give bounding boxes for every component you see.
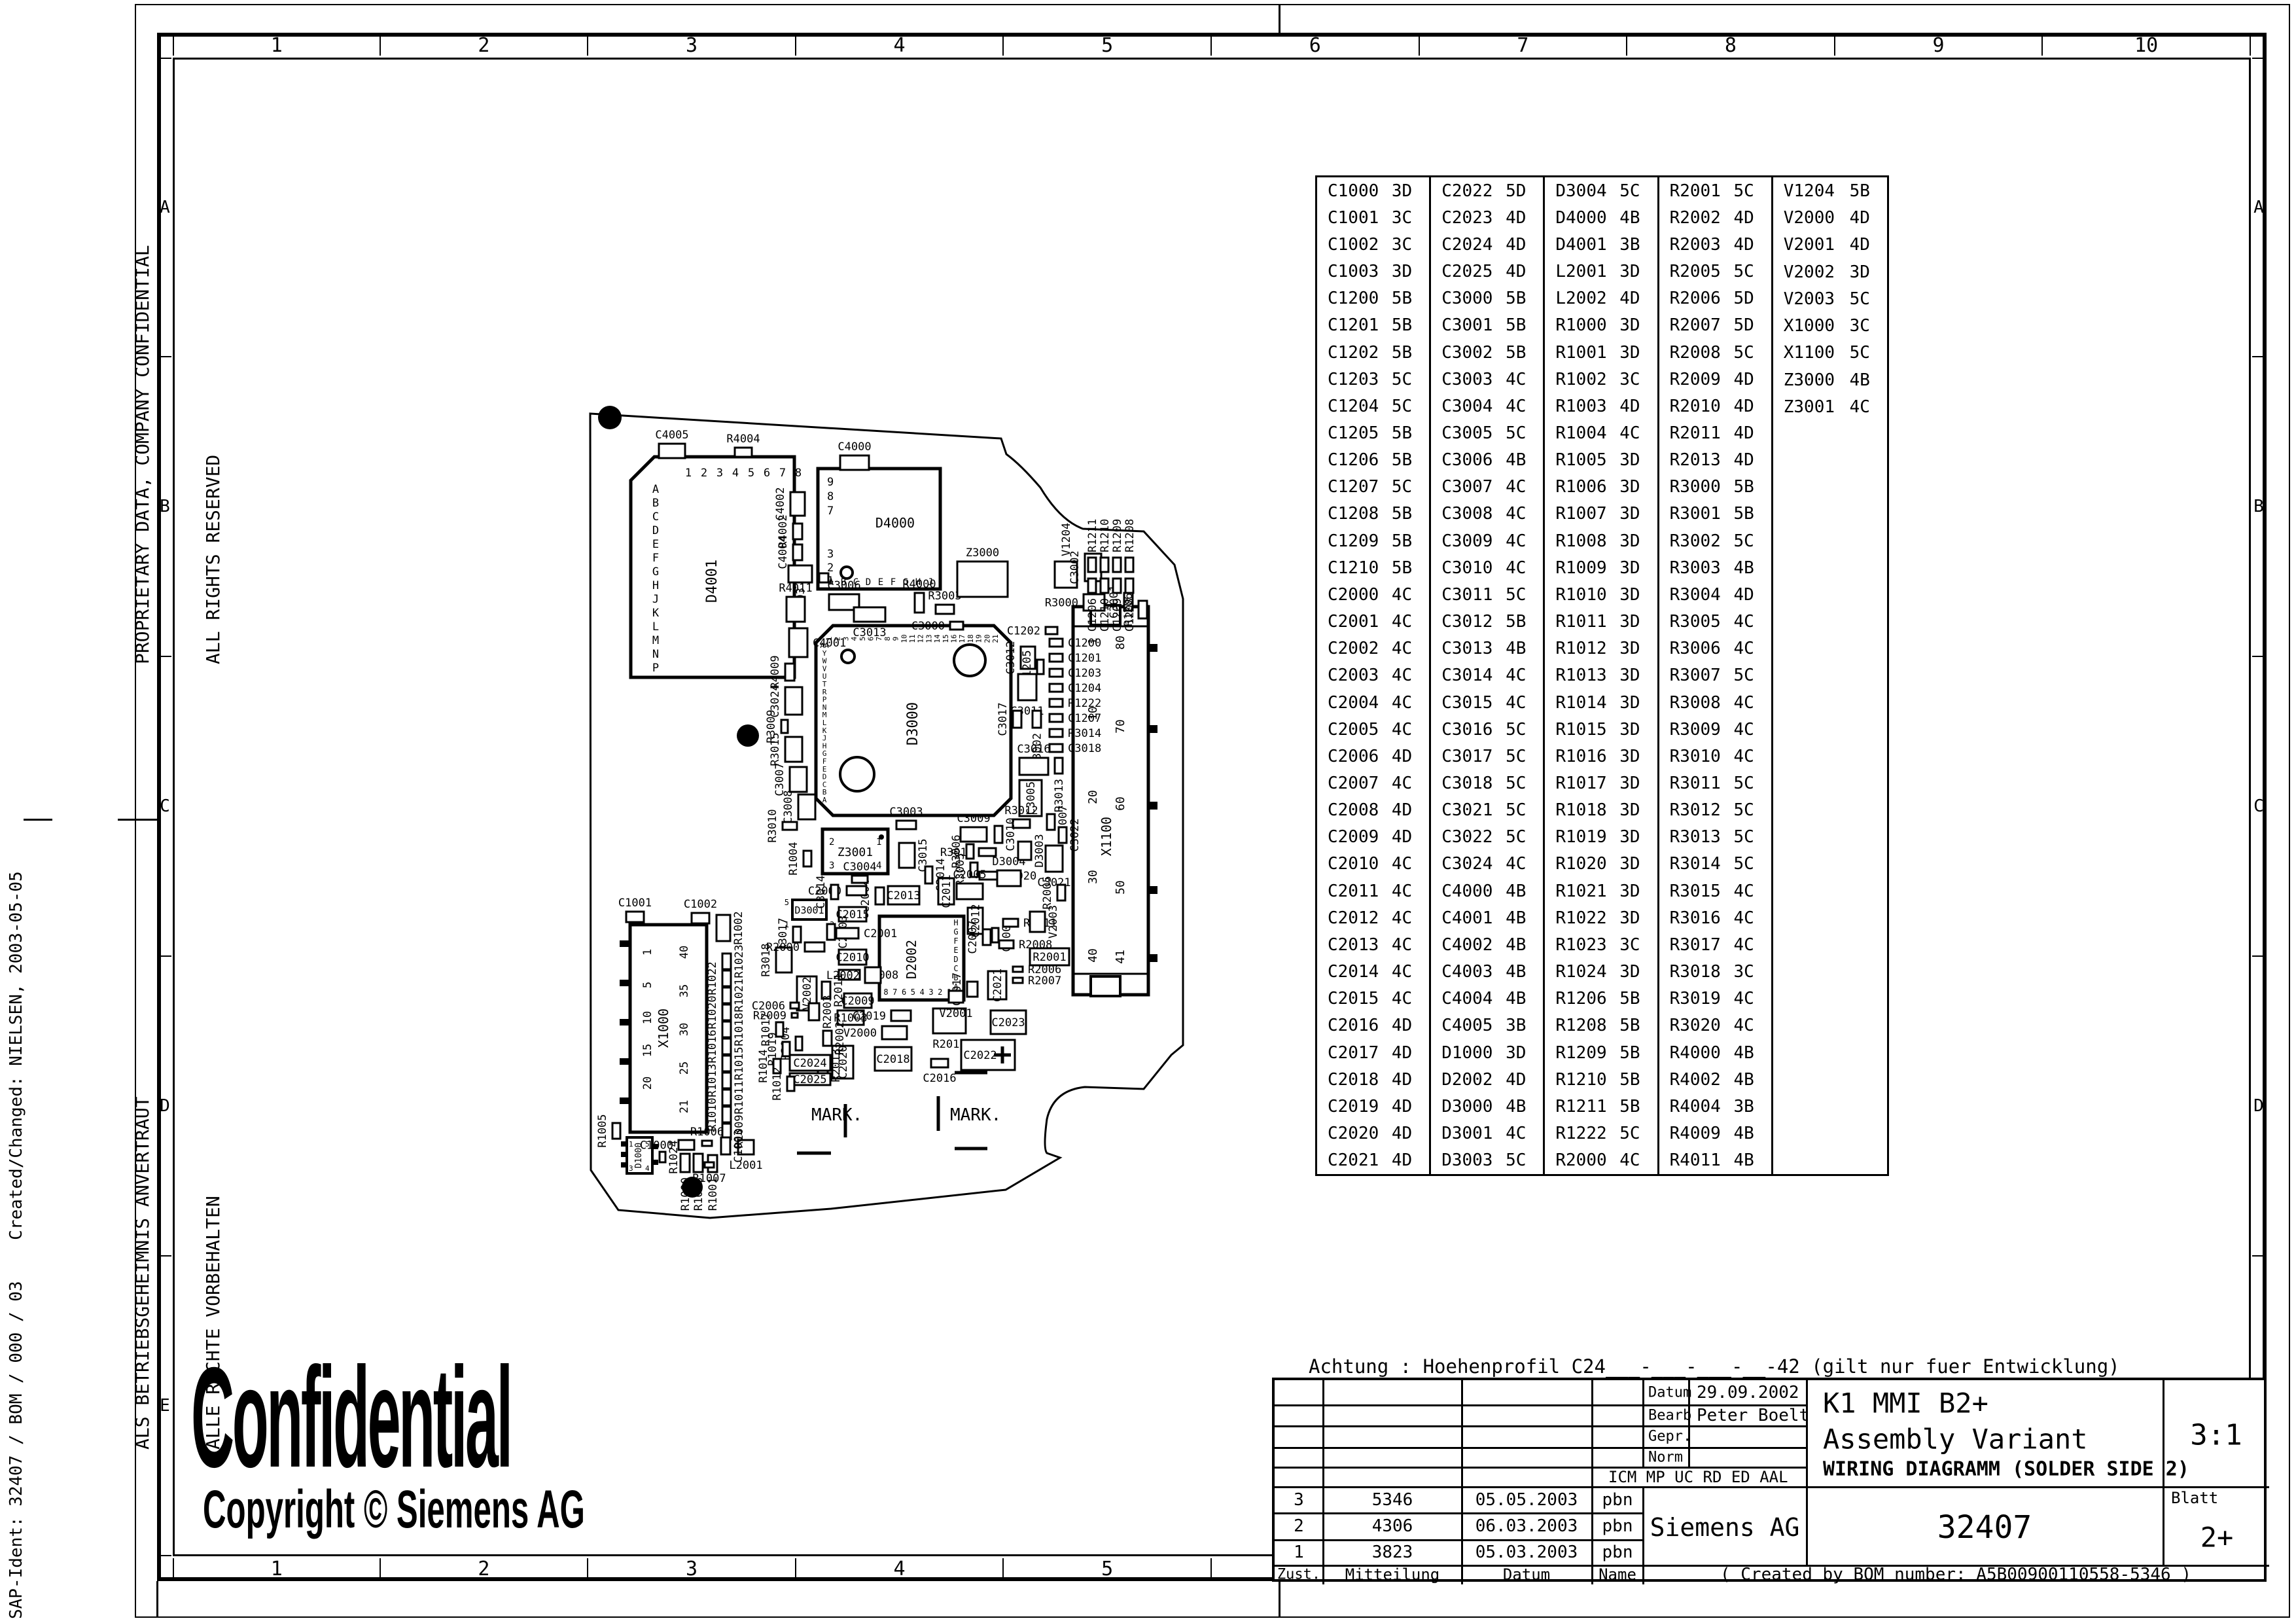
tb-rev-datum: 06.03.2003 — [1475, 1516, 1578, 1536]
component-C2003 — [827, 924, 835, 940]
component-C1210 — [1101, 579, 1108, 593]
component-R1015 — [722, 1056, 731, 1071]
component-C1209 — [1113, 579, 1121, 593]
component-V2001 — [949, 991, 963, 1003]
ic-pin-number: 6 — [902, 988, 906, 997]
component-label: V2000 — [843, 1027, 877, 1040]
tb-title-line1: K1 MMI B2+ — [1823, 1387, 1988, 1419]
tb-rev-mitteilung: 3823 — [1372, 1543, 1413, 1562]
component-C4005 — [659, 444, 685, 458]
tb-rev-mitteilung: 4306 — [1372, 1516, 1413, 1536]
component-R2007 — [1013, 978, 1023, 983]
ic-pin-number: 2 — [938, 988, 942, 997]
component-R1222 — [1050, 699, 1063, 707]
ic-pin-letter: A — [652, 483, 659, 496]
component-label: C4004 — [777, 535, 790, 569]
component-R3002 — [1033, 711, 1041, 728]
component-R2005 — [1057, 885, 1065, 901]
component-label: C2001 — [864, 927, 897, 940]
component-label: R1017 — [760, 1012, 773, 1046]
component-R1005 — [612, 1123, 620, 1139]
component-label: C3017 — [997, 702, 1010, 736]
component-R1016 — [722, 1039, 731, 1054]
connector-pin-number: 70 — [1114, 719, 1127, 734]
component-label: C2019 — [853, 1010, 886, 1023]
component-label: R1013 — [706, 1063, 719, 1097]
component-R4002 — [793, 524, 802, 539]
component-R2009 — [792, 1013, 798, 1018]
component-C3010 — [995, 826, 1002, 843]
ic-pin-number: 13 — [925, 634, 933, 643]
component-C2007 — [983, 929, 991, 945]
tb-vline-2 — [1591, 1380, 1593, 1584]
component-label: C2010 — [836, 952, 869, 965]
ic-pin-number: 4 — [920, 988, 925, 997]
component-R1208 — [1125, 558, 1133, 572]
ic-pin-number: 4 — [876, 861, 881, 871]
component-C1207 — [1050, 714, 1063, 722]
component-label: R1023 — [733, 944, 746, 978]
component-R1020 — [722, 1005, 731, 1020]
component-R2006 — [1013, 967, 1023, 972]
ic-label-d3000: D3000 — [905, 702, 921, 745]
ic-pin-letter: C — [652, 510, 659, 524]
tb-rev-datum: 05.05.2003 — [1475, 1490, 1578, 1510]
ic-pin-letter: H — [652, 579, 659, 592]
component-label: C2013 — [887, 889, 920, 902]
ic-pin-letter: D — [953, 955, 958, 964]
tb-vline-4 — [1642, 1487, 1644, 1584]
tb-footer-Mitteilung: Mitteilung — [1345, 1565, 1440, 1584]
connector-tab — [620, 1058, 630, 1065]
ic-pin-number: 10 — [900, 634, 908, 643]
component-R3010 — [783, 822, 797, 830]
connector-tab — [620, 980, 630, 986]
tb-footer-Name: Name — [1598, 1565, 1636, 1584]
component-C2019 — [891, 1010, 911, 1021]
component-C2017 — [967, 982, 978, 997]
ic-pin-letter: N — [652, 648, 659, 661]
component-label: C3008 — [782, 790, 795, 823]
connector-tab — [1148, 644, 1157, 652]
component-label: R3000 — [1045, 597, 1078, 610]
component-C4000 — [840, 455, 869, 470]
component-R1018 — [722, 1022, 731, 1037]
component-C2005 — [957, 883, 983, 899]
ic-pin-number: 16 — [950, 634, 959, 643]
ic-pin1-dot — [879, 834, 884, 840]
component-label: C1201 — [1068, 652, 1101, 665]
component-label: C1001 — [618, 897, 652, 910]
hole — [841, 567, 853, 579]
component-label: C1202 — [1007, 625, 1040, 638]
component-label: C1003 — [732, 1129, 745, 1162]
ic-pin-letter: J — [652, 593, 659, 606]
component-label: C1206 — [1086, 598, 1099, 632]
component-label: C2016 — [923, 1072, 956, 1085]
mark-label: MARK. — [950, 1105, 1001, 1125]
ic-pin-number: 4 — [732, 467, 739, 480]
component-label: R1020 — [706, 995, 719, 1029]
ic-label-d2002: D2002 — [904, 940, 919, 979]
component-label: R2005 — [1041, 876, 1054, 909]
component-C1202 — [1046, 627, 1057, 634]
tb-info-label-Norm: Norm — [1648, 1450, 1683, 1466]
ic-pin-letter: M — [652, 634, 659, 647]
tb-rev-name: pbn — [1602, 1490, 1633, 1510]
tb-vline-1 — [1461, 1380, 1463, 1584]
component-R1013 — [722, 1073, 731, 1088]
component-label: C3016 — [1017, 743, 1050, 756]
component-label: R1016 — [706, 1029, 719, 1063]
ic-pin-stub — [621, 1152, 627, 1157]
component-C1201 — [1050, 654, 1063, 662]
component-R3007 — [1047, 814, 1055, 830]
component-R1002 — [716, 915, 730, 941]
component-label: R1004 — [787, 842, 800, 875]
component-R1000 — [680, 1154, 690, 1172]
component-label: C2023 — [991, 1016, 1025, 1029]
connector-pin-number: 80 — [1114, 635, 1127, 650]
component-label: R2013 — [830, 1048, 843, 1082]
component-R1012 — [787, 1077, 794, 1091]
component-label: C4000 — [838, 440, 871, 454]
connector-label-x1000: X1000 — [656, 1008, 671, 1048]
tb-vline-3 — [1642, 1380, 1644, 1467]
component-R1211 — [1088, 558, 1096, 572]
component-R3013 — [1055, 758, 1063, 774]
component-C3014 — [831, 885, 838, 899]
component-label: R1000 — [679, 1177, 692, 1211]
component-label: C3012 — [1004, 641, 1017, 674]
component-C3011 — [1018, 674, 1036, 700]
component-R1004 — [804, 851, 811, 866]
component-label: C3000 — [911, 620, 945, 633]
component-label: R2000 — [766, 941, 800, 954]
ic-pin-letter: G — [953, 927, 958, 936]
component-label: R3015 — [769, 732, 782, 766]
ic-pin-stub — [621, 1141, 627, 1147]
component-label: C3014 — [815, 875, 828, 908]
ic-pin-number: 19 — [975, 634, 983, 643]
component-label: C1208 — [1123, 598, 1137, 632]
component-label: C4001 — [813, 637, 846, 650]
component-label: R4009 — [769, 655, 782, 688]
ic-pin-number: 6 — [764, 467, 770, 480]
component-R2000 — [805, 942, 824, 952]
ic-pin-number: 17 — [958, 634, 966, 643]
component-label: R4011 — [779, 582, 812, 595]
component-C4003 — [788, 565, 812, 582]
component-C3000 — [950, 622, 963, 630]
component-label: C3013 — [853, 626, 886, 639]
tb-rev-zust: 3 — [1294, 1490, 1304, 1510]
component-C1001 — [626, 912, 644, 922]
component-R1006 — [702, 1141, 712, 1146]
component-C3004 — [852, 876, 868, 883]
component-label: C2011 — [940, 874, 953, 908]
component-C1002 — [692, 913, 709, 923]
component-label: R1024 — [667, 1140, 680, 1173]
ic-pin-letter: A — [822, 796, 827, 804]
component-label: Z3000 — [966, 546, 999, 560]
component-R1007 — [705, 1162, 714, 1168]
component-label: R1005 — [596, 1114, 609, 1147]
component-label: C1002 — [684, 898, 717, 911]
tb-title-line2: Assembly Variant — [1823, 1423, 2088, 1455]
component-R1021 — [722, 988, 731, 1003]
connector-tab — [1148, 954, 1157, 962]
component-R1023 — [722, 954, 731, 969]
ic-label-d4001: D4001 — [704, 560, 720, 603]
component-L2002 — [865, 967, 881, 983]
ic-pin-number: 21 — [991, 634, 1000, 643]
ic-pin-letter: D — [866, 577, 871, 588]
component-C2000 — [847, 886, 866, 895]
component-R1210 — [1101, 558, 1108, 572]
component-label: C1204 — [1068, 682, 1101, 695]
component-label: V2003 — [1047, 905, 1060, 938]
component-label: R1209 — [1111, 519, 1124, 552]
ic-pin-number: 11 — [908, 634, 917, 643]
ic-pin-letter: E — [652, 538, 659, 551]
tb-vline-0 — [1322, 1380, 1324, 1584]
ic-pin-number: 3 — [827, 548, 834, 561]
ic-pin-number: 5 — [785, 898, 789, 907]
tb-info-value-Bearb: Peter Boelt — [1697, 1406, 1809, 1425]
component-R3006 — [966, 844, 974, 859]
component-label: C4005 — [655, 429, 688, 442]
tb-hline-5 — [1275, 1512, 1643, 1514]
component-C3017 — [1013, 711, 1021, 728]
component-C3016 — [1019, 758, 1048, 775]
component-label: R1015 — [733, 1046, 746, 1080]
component-C4004 — [793, 544, 802, 560]
component-label: R2001 — [1033, 951, 1066, 964]
component-R3011 — [1003, 919, 1018, 927]
tb-hline-2 — [1275, 1447, 1807, 1449]
component-C3008 — [798, 794, 815, 819]
tb-info-value-Datum: 29.09.2002 — [1697, 1383, 1799, 1402]
connector-tab — [620, 1019, 630, 1026]
mark-label: MARK. — [811, 1105, 862, 1125]
tb-rev-datum: 05.03.2003 — [1475, 1543, 1578, 1562]
title-block: Datum29.09.2002BearbPeter BoeltGepr.Norm… — [1272, 1378, 2267, 1582]
ic-pin-number: 8 — [883, 988, 888, 997]
ic-pin-number: 2 — [829, 837, 834, 847]
ic-pin-stub — [652, 1160, 658, 1165]
ic-pin-number: 7 — [827, 505, 834, 518]
component-R1011 — [722, 1090, 731, 1105]
component-C4002 — [790, 492, 805, 516]
connector-pin-number: 1 — [641, 949, 654, 955]
ic-pin-letter: F — [891, 577, 896, 588]
component-label: R1007 — [692, 1172, 726, 1185]
ic-pin-letter: D — [652, 524, 659, 537]
ic-pin-number: 7 — [892, 988, 897, 997]
component-C3007 — [790, 767, 807, 792]
component-R3003 — [936, 605, 954, 614]
tb-blatt-label: Blatt — [2171, 1489, 2218, 1507]
connector-tab — [620, 940, 630, 947]
connector-pin-number: 5 — [641, 982, 654, 988]
component-R1019 — [783, 1042, 790, 1056]
component-D3004 — [997, 870, 1021, 886]
tb-info-label-Bearb: Bearb — [1648, 1408, 1691, 1424]
component-C1003 — [721, 1137, 730, 1154]
component-C1206 — [1088, 579, 1096, 593]
component-R1206 — [1139, 601, 1147, 618]
component-label: C1200 — [1068, 637, 1101, 650]
ic-pin-letter: B — [652, 497, 659, 510]
ic-pin-letter: G — [652, 565, 659, 579]
component-R2008 — [999, 940, 1014, 948]
tb-rev-zust: 2 — [1294, 1516, 1304, 1536]
ic-pin-letter: E — [953, 946, 958, 955]
ic-pin-number: 8 — [795, 467, 802, 480]
connector-tab — [1148, 886, 1157, 894]
component-label: R3012 — [1004, 804, 1038, 817]
component-label: R1014 — [757, 1049, 770, 1082]
component-label: R1222 — [1068, 697, 1101, 710]
component-R3017 — [793, 927, 801, 942]
connector-pin-number: 41 — [1114, 950, 1127, 964]
component-label: C2007 — [966, 920, 980, 954]
connector-pin-number: 50 — [1114, 880, 1127, 895]
connector-label-x1100: X1100 — [1099, 817, 1114, 856]
tb-rev-name: pbn — [1602, 1543, 1633, 1562]
ic-pin-number: 20 — [983, 634, 991, 643]
ic-pin-letter: F — [652, 552, 659, 565]
component-label: R2007 — [1028, 974, 1061, 988]
component-V2003 — [1030, 912, 1045, 932]
tb-footer-Zust.: Zust. — [1277, 1567, 1320, 1583]
connector-pin-number: 30 — [1086, 870, 1100, 884]
component-label: C2025 — [793, 1073, 826, 1086]
component-label: C1210 — [1099, 598, 1112, 632]
component-R4011 — [786, 597, 805, 622]
component-label: R2003 — [821, 995, 834, 1028]
ic-pin-number: 1 — [685, 467, 692, 480]
component-label: C2005 — [953, 868, 986, 882]
tb-scale: 3:1 — [2190, 1419, 2242, 1452]
component-label: R4004 — [726, 433, 760, 446]
component-R1010 — [722, 1107, 731, 1122]
component-R2002 — [823, 1031, 832, 1046]
component-C2006 — [790, 1003, 799, 1008]
component-label: C3009 — [957, 812, 990, 825]
tb-info-label-Datum: Datum — [1648, 1385, 1691, 1401]
tb-created-by: ( Created by BOM number: A5B00900110558-… — [1720, 1565, 2191, 1584]
component-C1203 — [1050, 669, 1063, 677]
tb-footer-Datum: Datum — [1503, 1565, 1550, 1584]
component-label: C2009 — [841, 995, 874, 1008]
component-label: D3003 — [1033, 834, 1046, 867]
ic-pin-number: 9 — [892, 637, 900, 641]
connector-pin-number: 10 — [641, 1011, 654, 1024]
component-C4001 — [789, 628, 807, 657]
connector-pin-number: 25 — [678, 1061, 691, 1075]
connector-pin-number: 20 — [1086, 790, 1100, 804]
tb-hline-6 — [1275, 1539, 1643, 1541]
tb-rev-name: pbn — [1602, 1516, 1633, 1536]
component-label: L2002 — [826, 969, 860, 982]
component-R3009 — [781, 720, 788, 733]
component-C3009 — [961, 827, 987, 842]
component-label: C2021 — [991, 969, 1004, 1002]
component-C3015 — [899, 843, 915, 868]
ic-pin-number: 18 — [966, 634, 975, 643]
hole — [841, 650, 855, 663]
component-label: C2018 — [876, 1053, 910, 1066]
ic-pin-letter: P — [652, 662, 659, 675]
ic-pin-letter: C — [953, 964, 958, 973]
component-label: R1011 — [733, 1080, 746, 1114]
component-label: R1211 — [1086, 519, 1099, 552]
component-label: C2022 — [963, 1049, 997, 1062]
component-R4009 — [785, 664, 794, 681]
ic-pin-number: 3 — [716, 467, 723, 480]
component-C1208 — [1125, 579, 1133, 593]
component-C3022 — [1059, 827, 1067, 843]
connector-tab — [1148, 725, 1157, 733]
ic-pin-number: 5 — [748, 467, 754, 480]
component-label: C1207 — [1068, 712, 1101, 725]
connector-tab — [620, 1097, 630, 1104]
hole — [954, 645, 985, 676]
tb-rev-zust: 1 — [1294, 1543, 1304, 1562]
component-D3003 — [1018, 842, 1031, 860]
ic-pin-number: 8 — [827, 490, 834, 503]
connector-pin-number: 60 — [1114, 796, 1127, 811]
connector-notch — [1091, 976, 1120, 996]
connector-pin-number: 30 — [678, 1023, 691, 1036]
ic-pin-letter: L — [652, 620, 659, 633]
component-label: R3010 — [766, 809, 779, 842]
ic-pin-number: 14 — [933, 634, 942, 643]
component-label: C1203 — [1068, 667, 1101, 680]
component-C2014 — [925, 866, 932, 883]
component-C1200 — [1050, 639, 1063, 647]
tb-icm: ICM MP UC RD ED AAL — [1608, 1468, 1788, 1486]
connector-pin-number: 35 — [678, 984, 691, 997]
component-label: R1210 — [1099, 519, 1112, 552]
component-R2003 — [809, 1003, 819, 1020]
ic-pin-stub — [621, 1162, 627, 1168]
ic-pin-letter: K — [652, 607, 660, 620]
ic-pin-number: 3 — [629, 1164, 633, 1173]
tb-blatt-value: 2+ — [2200, 1522, 2234, 1554]
component-label: R4000 — [902, 578, 936, 591]
ic-pin-letter: F — [953, 936, 958, 946]
connector-pin-number: 21 — [678, 1100, 691, 1113]
component-label: R1208 — [1123, 519, 1137, 552]
connector-tab — [1148, 802, 1157, 810]
ic-pin-number: 4 — [645, 1164, 650, 1173]
ic-pin-number: 3 — [928, 988, 933, 997]
mounting-hole — [737, 724, 759, 747]
ic-pin-number: 9 — [827, 476, 834, 489]
tb-title-line3: WIRING DIAGRAMM (SOLDER SIDE 2) — [1823, 1458, 2189, 1481]
component-label: R1002 — [732, 911, 745, 944]
component-label: C3010 — [1004, 817, 1017, 851]
component-label: C3004 — [843, 861, 876, 874]
component-label: C2024 — [793, 1057, 826, 1070]
ic-pin-letter: H — [953, 918, 958, 927]
ic-pin-number: 3 — [829, 861, 834, 871]
component-label: R3014 — [1068, 727, 1101, 740]
component-label: C3003 — [889, 806, 923, 819]
